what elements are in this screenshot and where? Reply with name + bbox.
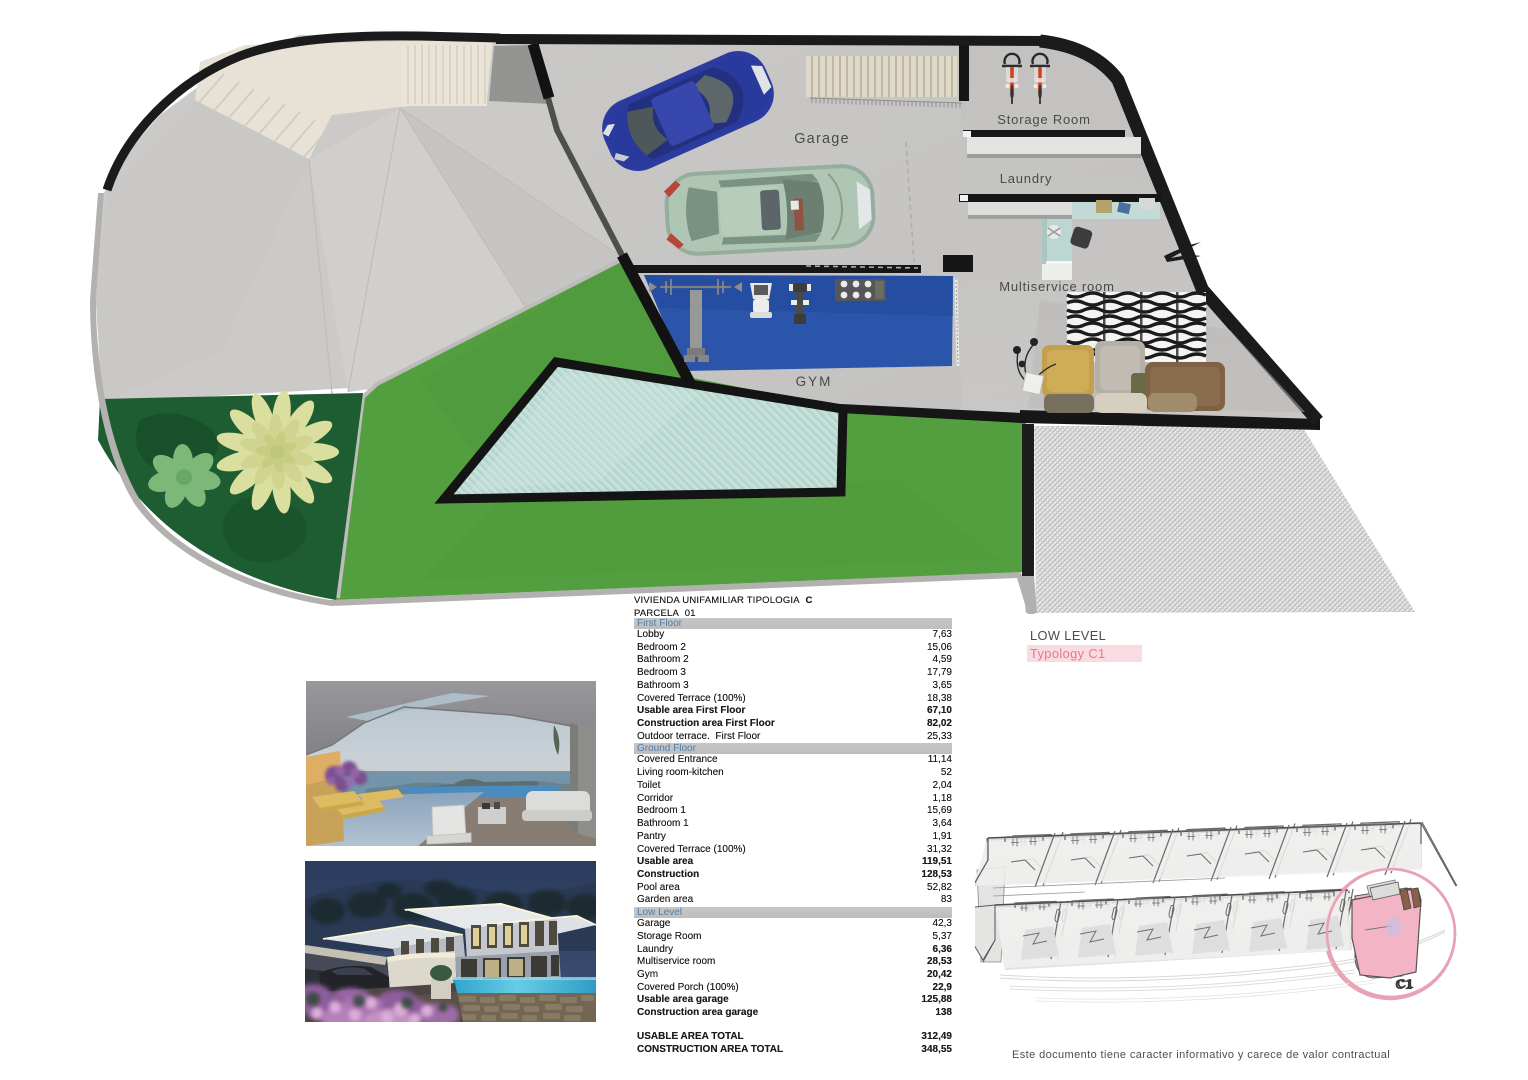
svg-text:GYM: GYM [796,374,833,389]
svg-text:Garage: Garage [794,131,850,147]
svg-text:Este documento tiene caracter: Este documento tiene caracter informativ… [1012,1049,1390,1061]
svg-text:Storage Room: Storage Room [997,112,1090,127]
svg-text:Laundry: Laundry [1000,171,1053,186]
svg-text:C1: C1 [1397,976,1414,991]
svg-text:LOW LEVEL: LOW LEVEL [1030,628,1106,643]
svg-text:Typology C1: Typology C1 [1030,646,1106,661]
svg-text:Multiservice room: Multiservice room [999,279,1114,294]
